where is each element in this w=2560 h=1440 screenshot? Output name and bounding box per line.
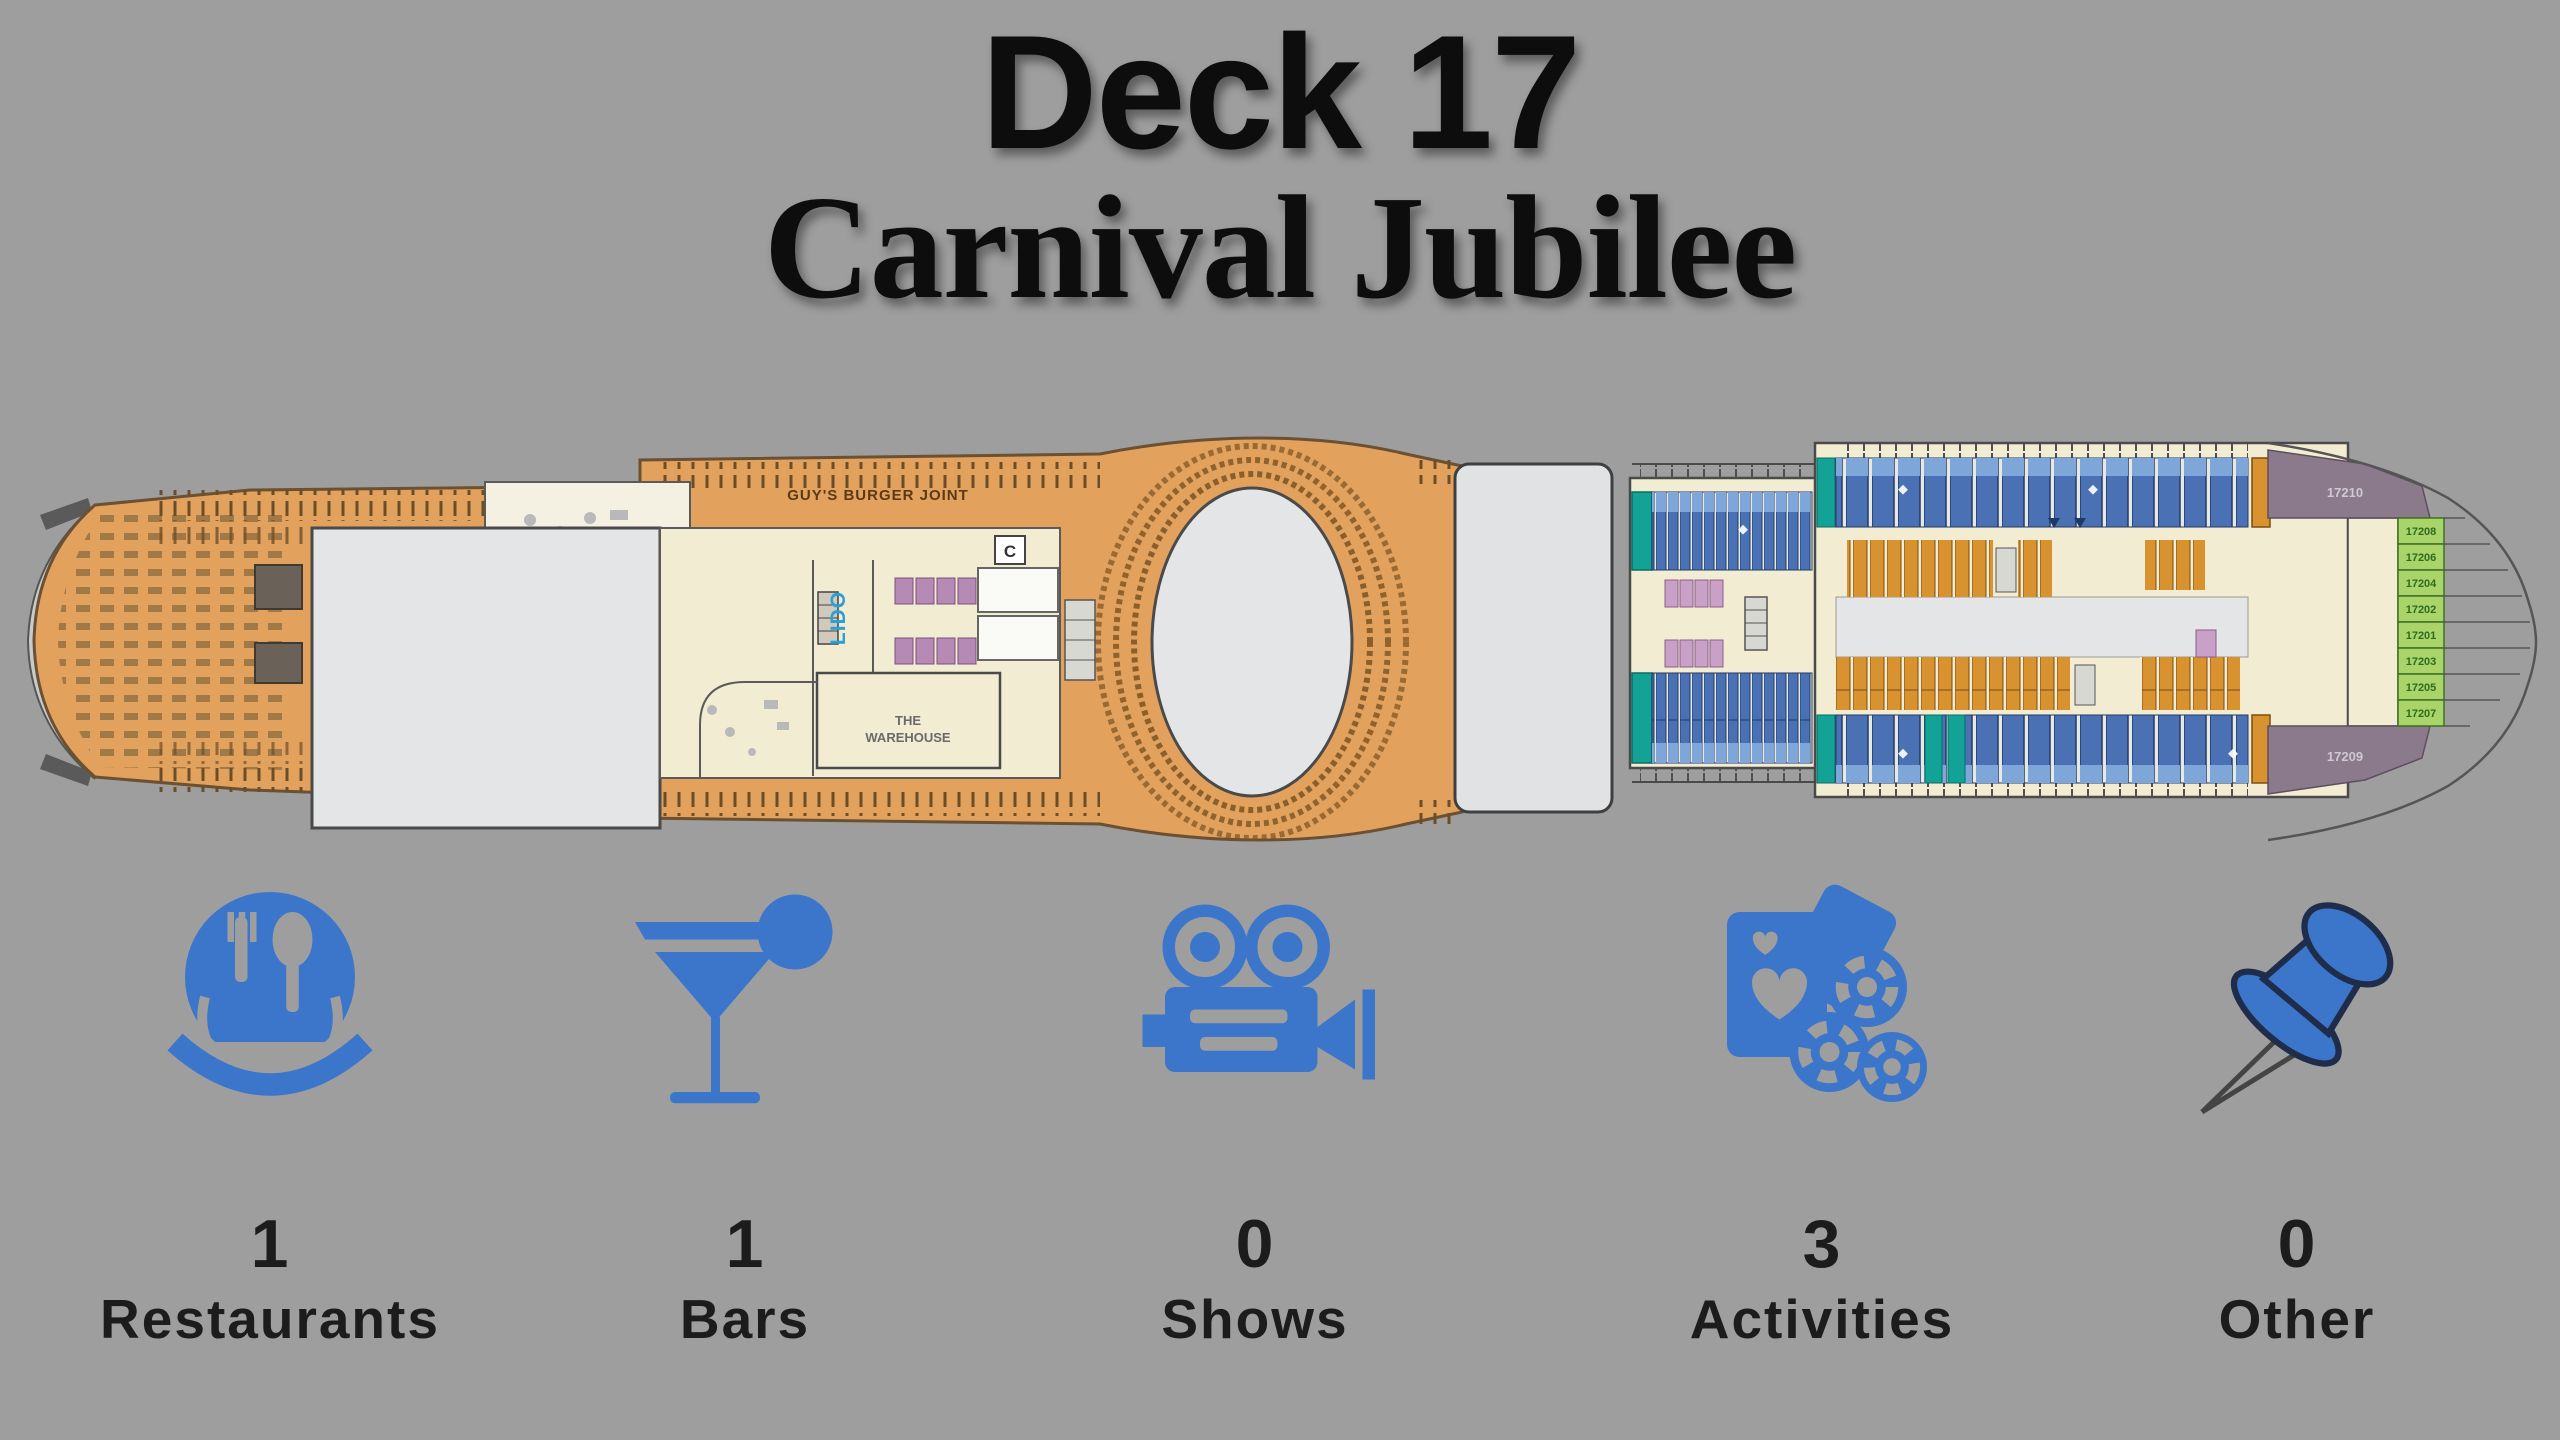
stat-count: 3 — [1562, 1210, 2082, 1278]
restaurant-icon — [145, 882, 395, 1132]
cabin-band-aft — [1630, 464, 1816, 782]
burger-joint-label: GUY'S BURGER JOINT — [787, 487, 969, 504]
stat-count: 0 — [995, 1210, 1515, 1278]
deck-plan: C LIDO THE WAREHOUSE GUY'S BURGER JOINT — [0, 420, 2560, 865]
stat-label: Restaurants — [10, 1292, 530, 1347]
header: Deck 17 Carnival Jubilee — [0, 14, 2560, 324]
green-cabin-label: 17204 — [2406, 578, 2437, 590]
ship-name: Carnival Jubilee — [0, 173, 2560, 324]
cabin-17210-label: 17210 — [2327, 485, 2363, 500]
screen-block — [255, 565, 302, 609]
page-title: Deck 17 — [0, 14, 2560, 173]
push-pin-icon — [2172, 882, 2422, 1132]
stat-count: 0 — [2037, 1210, 2557, 1278]
superstructure-block — [1455, 464, 1612, 812]
green-cabin-label: 17206 — [2406, 552, 2437, 564]
lido-label: LIDO — [827, 591, 850, 645]
movie-camera-icon — [1130, 882, 1380, 1132]
green-cabin-label: 17201 — [2406, 630, 2437, 642]
stat-count: 1 — [10, 1210, 530, 1278]
stat-activities: 3 Activities — [1562, 882, 2082, 1347]
green-cabin-label: 17205 — [2406, 682, 2437, 694]
stat-count: 1 — [485, 1210, 1005, 1278]
green-cabin-label: 17203 — [2406, 656, 2437, 668]
warehouse-label-2: WAREHOUSE — [865, 730, 951, 745]
stat-bars: 1 Bars — [485, 882, 1005, 1347]
stat-other: 0 Other — [2037, 882, 2557, 1347]
screen-block — [255, 643, 302, 683]
green-cabin-label: 17208 — [2406, 526, 2437, 538]
cocktail-icon — [620, 882, 870, 1132]
page: Deck 17 Carnival Jubilee — [0, 0, 2560, 1440]
stat-label: Activities — [1562, 1292, 2082, 1347]
stat-shows: 0 Shows — [995, 882, 1515, 1347]
stat-label: Other — [2037, 1292, 2557, 1347]
elevator-label: C — [1004, 542, 1016, 561]
casino-icon — [1697, 882, 1947, 1132]
stat-label: Bars — [485, 1292, 1005, 1347]
stat-restaurants: 1 Restaurants — [10, 882, 530, 1347]
green-cabin-label: 17207 — [2406, 708, 2437, 720]
neck-stairs — [1065, 600, 1095, 680]
warehouse-label-1: THE — [895, 713, 921, 728]
stat-label: Shows — [995, 1292, 1515, 1347]
green-cabin-label: 17202 — [2406, 604, 2437, 616]
lido-interior: C LIDO THE WAREHOUSE — [660, 528, 1060, 778]
cabin-17209-label: 17209 — [2327, 749, 2363, 764]
open-deck-cutout — [312, 528, 660, 828]
